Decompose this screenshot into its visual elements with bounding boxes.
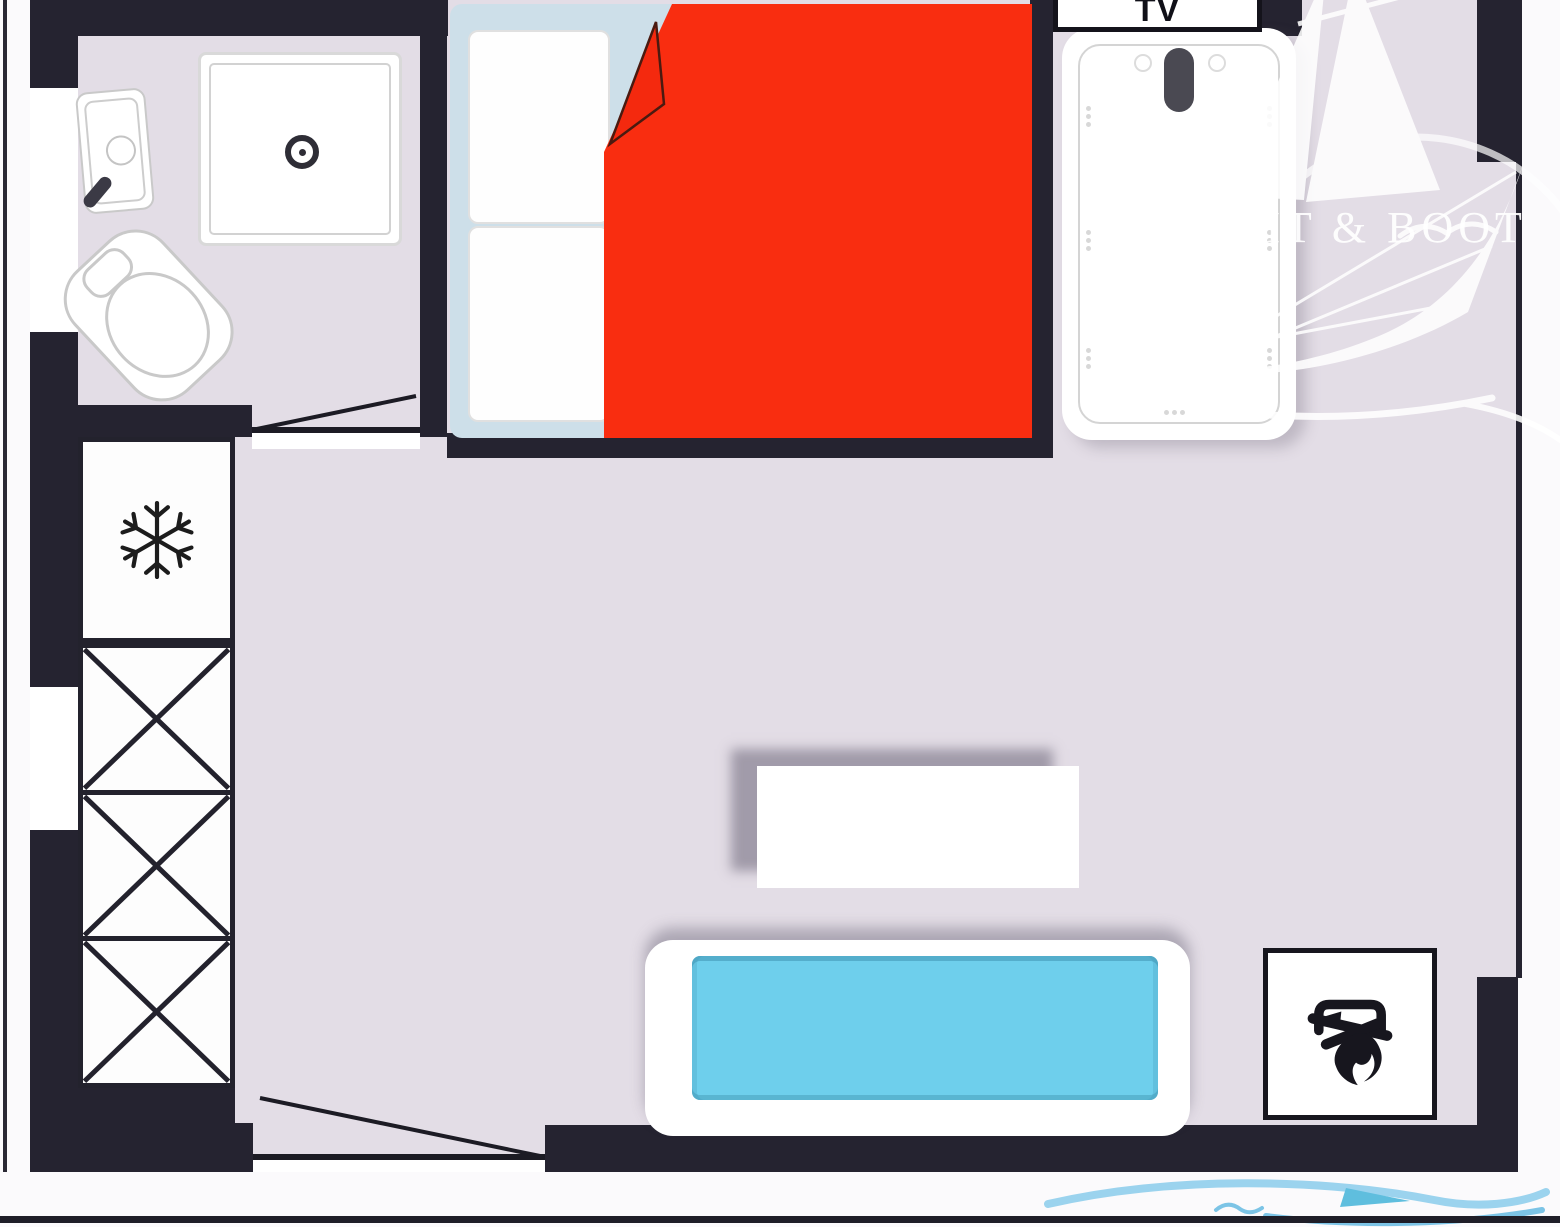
bed-pillow-top: [468, 30, 610, 224]
refrigerator: [78, 437, 235, 643]
bed-pillow-bottom: [468, 226, 610, 422]
wall-right-thin-line: [1516, 0, 1522, 978]
wall-right-top: [1477, 0, 1517, 162]
page-border-bottom-line: [0, 1216, 1560, 1223]
wardrobe-section-2: [83, 795, 230, 942]
wall-bathroom-top: [30, 0, 448, 36]
bathroom-door-swing-line: [250, 392, 420, 436]
wardrobe: [78, 643, 235, 1088]
bonfire-icon: [1298, 978, 1402, 1090]
window-left-lower: [30, 687, 78, 830]
bathroom-sink: [75, 87, 155, 215]
crossed-box-icon: [83, 941, 230, 1083]
toilet: [62, 228, 262, 418]
page-border-left-line: [3, 0, 7, 1172]
bathtub-faucet: [1164, 48, 1194, 112]
bed-blanket-red: [602, 4, 1032, 438]
bathtub-jets: [1267, 230, 1272, 235]
sofa: [645, 940, 1190, 1136]
crossed-box-icon: [83, 795, 230, 937]
bathtub-jets: [1267, 106, 1272, 111]
bathtub-drain: [1164, 410, 1169, 415]
entry-door-swing-line: [258, 1094, 544, 1162]
snowflake-icon: [115, 496, 199, 584]
wall-bathroom-divider: [420, 0, 447, 437]
bathtub-jets: [1086, 106, 1091, 111]
crossed-box-icon: [83, 648, 230, 790]
coffee-table: [757, 766, 1079, 888]
wall-bottom-left-corner: [30, 1088, 235, 1172]
bathtub-jets: [1267, 348, 1272, 353]
wardrobe-section-1: [83, 648, 230, 795]
bathtub-knob-right: [1208, 54, 1226, 72]
fireplace-box: [1263, 948, 1437, 1120]
sofa-cushion: [692, 956, 1158, 1100]
shower-drain-icon: [285, 135, 319, 169]
bathtub-jets: [1086, 348, 1091, 353]
tv-label: TV: [1135, 0, 1180, 30]
wall-door-stub-left: [220, 1123, 253, 1172]
wardrobe-section-3: [83, 941, 230, 1083]
floor-plan-canvas: TV: [0, 0, 1560, 1227]
bathtub-jets: [1086, 230, 1091, 235]
tv-label-box: TV: [1053, 0, 1262, 32]
shower-tray: [198, 52, 402, 246]
wall-bed-tub-divider: [1030, 0, 1053, 458]
bathtub: [1062, 28, 1296, 440]
bathtub-knob-left: [1134, 54, 1152, 72]
